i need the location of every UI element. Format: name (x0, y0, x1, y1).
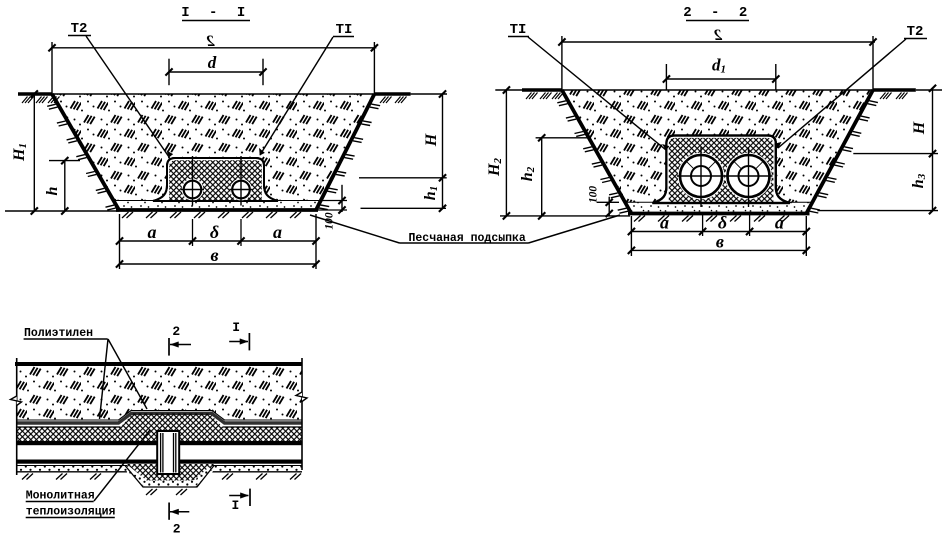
svg-text:a: a (775, 213, 784, 233)
svg-text:H: H (911, 121, 928, 135)
svg-text:d: d (208, 53, 217, 72)
svg-text:T2: T2 (907, 24, 924, 40)
svg-text:I: I (232, 320, 240, 335)
svg-text:Песчаная подсыпка: Песчаная подсыпка (409, 232, 526, 245)
svg-text:δ: δ (718, 213, 727, 233)
svg-text:TI: TI (336, 22, 353, 38)
svg-text:Полиэтилен: Полиэтилен (24, 327, 93, 340)
svg-text:T2: T2 (71, 21, 88, 37)
svg-text:2: 2 (173, 522, 181, 537)
svg-text:h: h (44, 186, 61, 195)
svg-text:I - I: I - I (181, 5, 251, 21)
svg-text:a: a (148, 222, 157, 242)
svg-text:в: в (716, 232, 724, 252)
svg-text:H: H (423, 133, 440, 147)
svg-text:I: I (231, 498, 239, 513)
svg-text:2 - 2: 2 - 2 (683, 5, 753, 21)
svg-text:2: 2 (207, 33, 216, 50)
svg-text:Монолитная: Монолитная (26, 490, 95, 503)
svg-text:TI: TI (510, 22, 527, 38)
svg-text:теплоизоляция: теплоизоляция (26, 506, 116, 519)
svg-text:a: a (273, 222, 282, 242)
svg-text:2: 2 (714, 27, 723, 44)
svg-text:a: a (660, 213, 669, 233)
svg-text:100: 100 (588, 186, 600, 204)
svg-text:в: в (210, 245, 218, 265)
svg-text:2: 2 (172, 324, 180, 339)
svg-text:δ: δ (210, 222, 219, 242)
